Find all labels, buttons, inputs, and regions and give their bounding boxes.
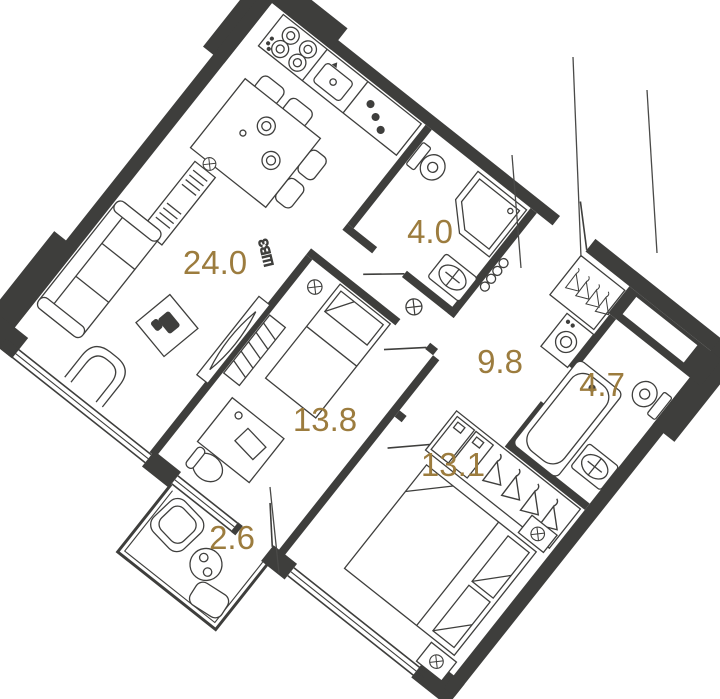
room-label-hallway: 9.8: [477, 343, 523, 380]
room-label-bathroom-small: 4.0: [407, 213, 453, 250]
windows: [12, 349, 427, 681]
floor-plan-page: ШВЗ: [0, 0, 720, 699]
room-label-bedroom: 13.1: [421, 446, 485, 483]
side-table-icon: [136, 295, 198, 357]
shaft-label: ШВЗ: [255, 237, 276, 268]
armchair-icon: [65, 340, 132, 407]
bathroom-small-door-leaf: [363, 254, 404, 294]
balcony-door-leaf: [250, 503, 293, 547]
room-label-room-middle: 13.8: [293, 401, 357, 438]
entrance-door-leaf: [559, 202, 608, 250]
balcony: [118, 484, 269, 629]
sconce-icon: [305, 277, 325, 297]
room-middle-door-leaf: [384, 328, 426, 370]
stool-icon: [186, 579, 231, 621]
room-label-bathroom-large: 4.7: [579, 366, 625, 403]
lamp-icon: [403, 296, 425, 318]
floor-plan-drawing: ШВЗ: [0, 0, 720, 699]
room-label-living-kitchen: 24.0: [183, 244, 247, 281]
plan-rotated-group: ШВЗ: [0, 0, 720, 699]
room-label-balcony: 2.6: [209, 519, 255, 556]
